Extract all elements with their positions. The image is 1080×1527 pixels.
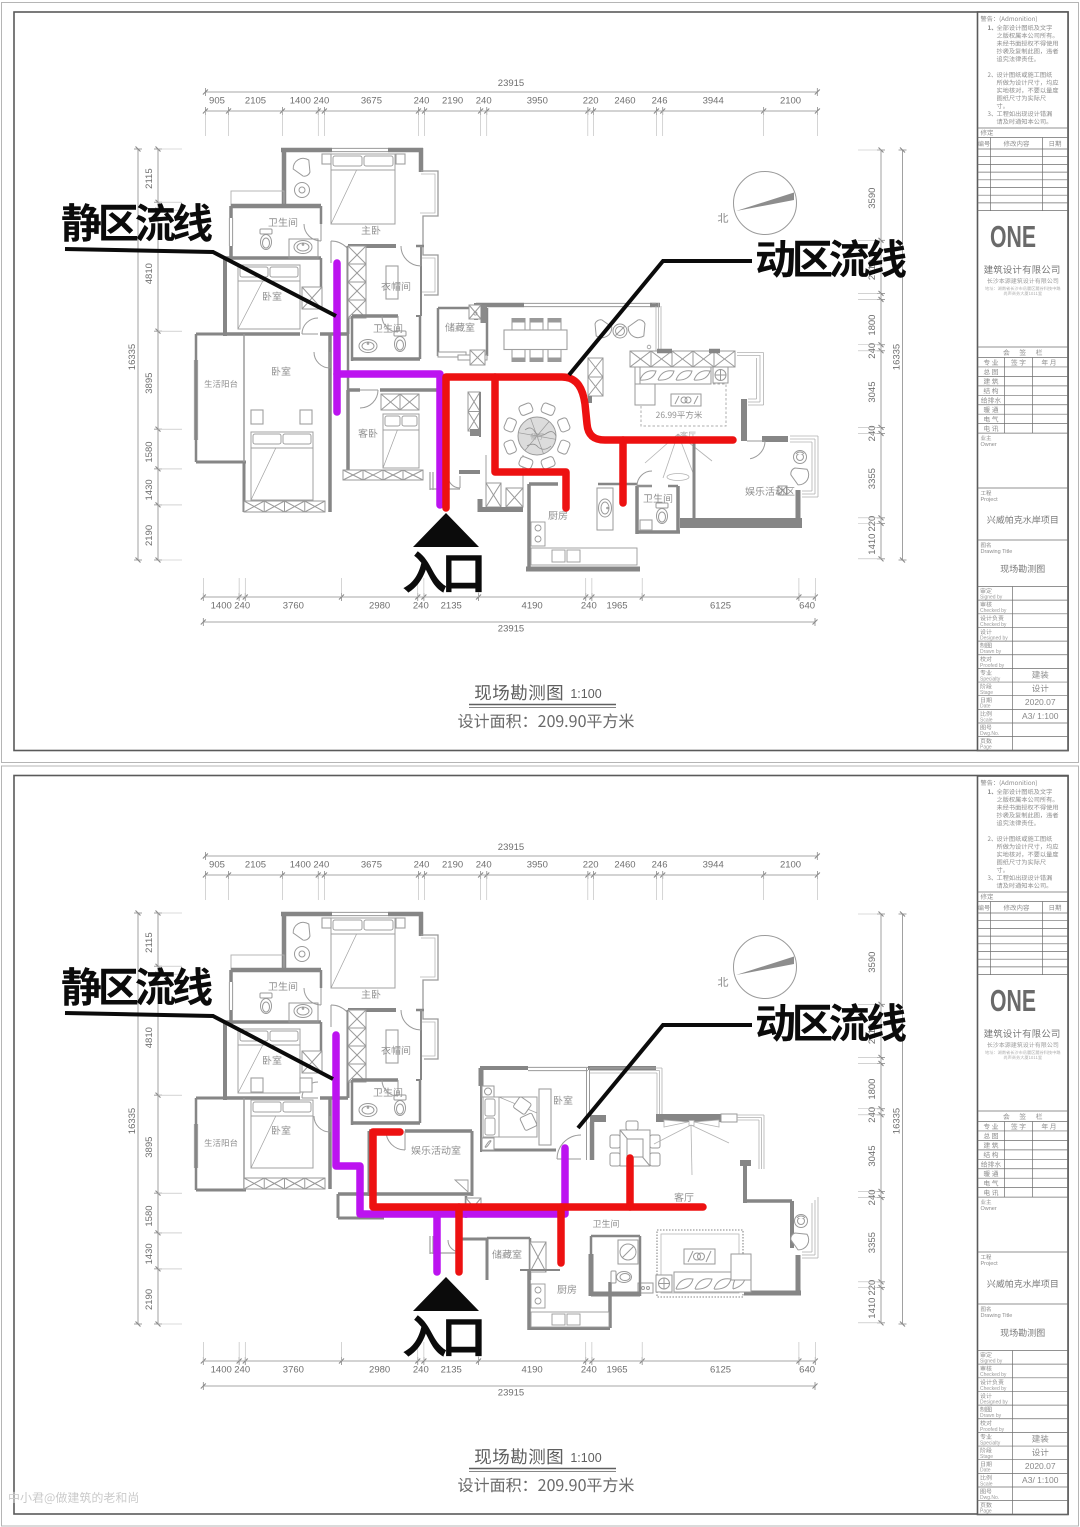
- svg-text:Checked by: Checked by: [980, 1372, 1007, 1378]
- svg-text:Signed by: Signed by: [980, 595, 1003, 601]
- svg-text:2190: 2190: [442, 860, 463, 871]
- svg-text:Checked by: Checked by: [980, 1386, 1007, 1392]
- svg-text:905: 905: [209, 96, 225, 107]
- svg-text:246: 246: [652, 860, 668, 871]
- svg-text:240: 240: [234, 601, 250, 612]
- svg-text:240: 240: [234, 1365, 250, 1376]
- svg-text:2135: 2135: [441, 601, 462, 612]
- svg-text:Drawing Title: Drawing Title: [981, 1313, 1013, 1319]
- svg-text:1400: 1400: [290, 860, 311, 871]
- svg-text:1410: 1410: [867, 1298, 878, 1319]
- svg-text:2190: 2190: [442, 96, 463, 107]
- svg-text:2460: 2460: [614, 96, 635, 107]
- svg-text:Page: Page: [980, 745, 992, 751]
- svg-text:6125: 6125: [710, 1365, 731, 1376]
- svg-text:1400: 1400: [290, 96, 311, 107]
- svg-text:Date: Date: [980, 1468, 991, 1474]
- svg-text:Scale: Scale: [980, 1481, 993, 1487]
- svg-text:Specialty: Specialty: [980, 676, 1001, 682]
- svg-text:1800: 1800: [867, 315, 878, 336]
- svg-text:Owner: Owner: [981, 1206, 997, 1212]
- svg-text:4190: 4190: [522, 601, 543, 612]
- svg-text:2020.07: 2020.07: [1025, 697, 1056, 707]
- svg-text:2190: 2190: [144, 1289, 155, 1310]
- svg-text:905: 905: [209, 860, 225, 871]
- svg-text:3944: 3944: [703, 96, 724, 107]
- svg-text:3045: 3045: [867, 382, 878, 403]
- svg-text:Checked by: Checked by: [980, 608, 1007, 614]
- svg-text:Proofed by: Proofed by: [980, 663, 1005, 669]
- svg-text:2105: 2105: [245, 96, 266, 107]
- svg-text:1400: 1400: [211, 1365, 232, 1376]
- svg-text:2115: 2115: [144, 932, 155, 952]
- svg-text:220: 220: [583, 96, 599, 107]
- svg-text:240: 240: [313, 860, 329, 871]
- svg-text:1410: 1410: [867, 534, 878, 555]
- svg-text:2100: 2100: [780, 860, 801, 871]
- svg-text:Drawing Title: Drawing Title: [981, 549, 1013, 555]
- svg-text:640: 640: [799, 601, 815, 612]
- svg-text:ONE: ONE: [990, 219, 1036, 254]
- svg-text:3950: 3950: [527, 860, 548, 871]
- svg-text:A3/ 1:100: A3/ 1:100: [1022, 1475, 1059, 1485]
- svg-text:1430: 1430: [144, 1243, 155, 1264]
- svg-text:6125: 6125: [710, 601, 731, 612]
- svg-text:1965: 1965: [606, 601, 627, 612]
- svg-text:Drawn by: Drawn by: [980, 1413, 1002, 1419]
- svg-text:3355: 3355: [867, 468, 878, 489]
- svg-text:3760: 3760: [283, 1365, 304, 1376]
- svg-text:3355: 3355: [867, 1232, 878, 1253]
- svg-text:A3/ 1:100: A3/ 1:100: [1022, 711, 1059, 721]
- svg-text:2135: 2135: [441, 1365, 462, 1376]
- svg-text:240: 240: [581, 601, 597, 612]
- svg-text:Owner: Owner: [981, 442, 997, 448]
- svg-text:Dwg.No.: Dwg.No.: [980, 731, 999, 737]
- svg-text:ONE: ONE: [990, 983, 1036, 1018]
- svg-text:240: 240: [414, 860, 430, 871]
- svg-text:240: 240: [476, 860, 492, 871]
- svg-text:3895: 3895: [144, 373, 155, 394]
- svg-text:3675: 3675: [361, 96, 382, 107]
- svg-text:Page: Page: [980, 1509, 992, 1515]
- svg-text:23915: 23915: [498, 1388, 524, 1399]
- svg-text:1800: 1800: [867, 1079, 878, 1100]
- svg-text:240: 240: [413, 601, 429, 612]
- svg-text:3760: 3760: [283, 601, 304, 612]
- svg-text:2105: 2105: [245, 860, 266, 871]
- svg-text:16335: 16335: [892, 344, 903, 370]
- svg-text:1580: 1580: [144, 441, 155, 462]
- svg-text:16335: 16335: [127, 1108, 138, 1134]
- svg-text:Drawn by: Drawn by: [980, 649, 1002, 655]
- svg-text:Specialty: Specialty: [980, 1440, 1001, 1446]
- svg-text:3950: 3950: [527, 96, 548, 107]
- svg-text:1580: 1580: [144, 1205, 155, 1226]
- svg-text:2020.07: 2020.07: [1025, 1461, 1056, 1471]
- svg-text:1:100: 1:100: [570, 1451, 601, 1465]
- svg-text:240: 240: [476, 96, 492, 107]
- svg-text:Checked by: Checked by: [980, 622, 1007, 628]
- svg-text:1:100: 1:100: [570, 687, 601, 701]
- svg-text:4190: 4190: [522, 1365, 543, 1376]
- svg-text:246: 246: [652, 96, 668, 107]
- svg-text:Designed by: Designed by: [980, 635, 1008, 641]
- svg-text:Proofed by: Proofed by: [980, 1427, 1005, 1433]
- svg-text:240: 240: [414, 96, 430, 107]
- svg-text:Date: Date: [980, 704, 991, 710]
- svg-text:2190: 2190: [144, 525, 155, 546]
- svg-text:220: 220: [583, 860, 599, 871]
- svg-text:Project: Project: [981, 497, 999, 503]
- svg-text:2980: 2980: [369, 1365, 390, 1376]
- svg-text:640: 640: [799, 1365, 815, 1376]
- svg-text:240: 240: [581, 1365, 597, 1376]
- svg-text:Project: Project: [981, 1261, 999, 1267]
- svg-text:Dwg.No.: Dwg.No.: [980, 1495, 999, 1501]
- svg-text:4810: 4810: [144, 1027, 155, 1048]
- svg-text:23915: 23915: [498, 842, 524, 853]
- svg-text:3675: 3675: [361, 860, 382, 871]
- svg-text:Stage: Stage: [980, 690, 993, 696]
- svg-text:1965: 1965: [606, 1365, 627, 1376]
- svg-text:16335: 16335: [127, 344, 138, 370]
- svg-text:2115: 2115: [144, 168, 155, 188]
- svg-text:3895: 3895: [144, 1137, 155, 1158]
- svg-text:23915: 23915: [498, 624, 524, 635]
- svg-text:Signed by: Signed by: [980, 1359, 1003, 1365]
- svg-text:16335: 16335: [892, 1108, 903, 1134]
- svg-text:Designed by: Designed by: [980, 1399, 1008, 1405]
- svg-text:Scale: Scale: [980, 717, 993, 723]
- svg-text:3590: 3590: [867, 188, 878, 209]
- svg-text:2100: 2100: [780, 96, 801, 107]
- svg-text:1400: 1400: [211, 601, 232, 612]
- svg-text:3045: 3045: [867, 1146, 878, 1167]
- svg-text:Stage: Stage: [980, 1454, 993, 1460]
- svg-text:23915: 23915: [498, 78, 524, 89]
- svg-text:4810: 4810: [144, 263, 155, 284]
- svg-text:2980: 2980: [369, 601, 390, 612]
- svg-text:3590: 3590: [867, 952, 878, 973]
- svg-text:3944: 3944: [703, 860, 724, 871]
- svg-text:1430: 1430: [144, 479, 155, 500]
- svg-text:240: 240: [313, 96, 329, 107]
- svg-text:2460: 2460: [614, 860, 635, 871]
- svg-text:240: 240: [413, 1365, 429, 1376]
